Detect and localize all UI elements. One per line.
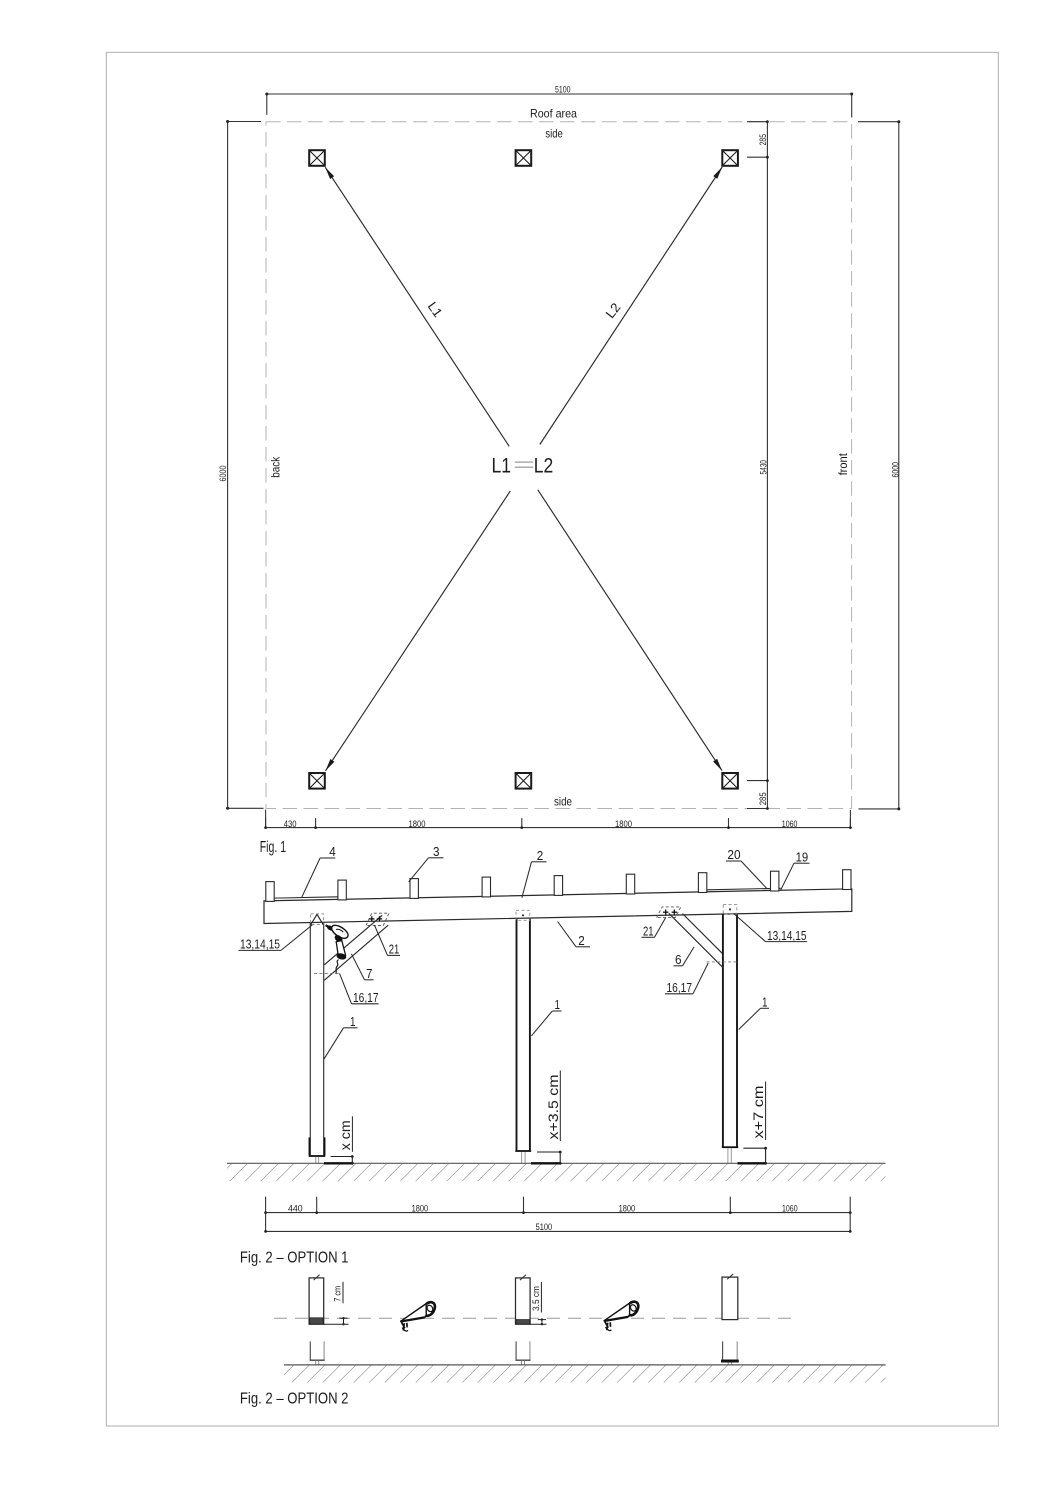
svg-text:6000: 6000 <box>218 466 229 482</box>
svg-text:1060: 1060 <box>782 819 798 830</box>
svg-text:6: 6 <box>675 952 682 967</box>
svg-text:side: side <box>545 127 563 141</box>
svg-text:Fig. 2 – OPTION 2: Fig. 2 – OPTION 2 <box>240 1391 349 1408</box>
svg-text:1: 1 <box>350 1014 356 1029</box>
svg-text:5430: 5430 <box>758 460 769 474</box>
svg-text:1800: 1800 <box>615 819 632 830</box>
svg-text:x+3.5 cm: x+3.5 cm <box>545 1075 561 1140</box>
svg-text:1800: 1800 <box>409 819 426 830</box>
svg-text:285: 285 <box>758 792 769 805</box>
svg-text:1060: 1060 <box>782 1204 798 1215</box>
svg-text:4: 4 <box>329 844 336 859</box>
svg-text:440: 440 <box>288 1204 303 1215</box>
svg-text:L2: L2 <box>534 454 554 477</box>
svg-text:7: 7 <box>366 966 373 981</box>
svg-text:1800: 1800 <box>619 1204 636 1215</box>
svg-text:430: 430 <box>284 819 297 830</box>
svg-text:Fig. 1: Fig. 1 <box>260 839 286 856</box>
svg-text:13,14,15: 13,14,15 <box>767 928 807 943</box>
svg-text:16,17: 16,17 <box>353 990 379 1005</box>
svg-text:3.5 cm: 3.5 cm <box>531 1286 542 1311</box>
svg-text:21: 21 <box>389 942 400 957</box>
svg-text:x+7 cm: x+7 cm <box>750 1086 766 1139</box>
svg-text:21: 21 <box>643 924 654 939</box>
svg-text:back: back <box>269 456 283 478</box>
svg-text:2: 2 <box>578 933 585 948</box>
svg-text:side: side <box>554 795 572 809</box>
svg-text:3: 3 <box>433 844 440 859</box>
svg-text:1800: 1800 <box>412 1204 429 1215</box>
svg-text:1: 1 <box>555 997 561 1012</box>
svg-text:16,17: 16,17 <box>667 980 693 995</box>
svg-text:Fig. 2 – OPTION 1: Fig. 2 – OPTION 1 <box>240 1249 349 1266</box>
svg-text:285: 285 <box>758 134 769 145</box>
svg-text:13,14,15: 13,14,15 <box>240 937 280 952</box>
svg-text:5100: 5100 <box>555 84 571 95</box>
svg-text:L1: L1 <box>492 454 512 477</box>
svg-text:x cm: x cm <box>337 1120 353 1150</box>
svg-text:20: 20 <box>727 847 740 862</box>
svg-text:7 cm: 7 cm <box>333 1286 344 1302</box>
svg-text:2: 2 <box>537 848 544 863</box>
svg-text:front: front <box>836 453 850 476</box>
svg-text:6000: 6000 <box>890 462 901 478</box>
svg-text:Roof area: Roof area <box>530 106 577 120</box>
svg-text:1: 1 <box>762 995 768 1010</box>
svg-text:19: 19 <box>796 850 809 865</box>
svg-text:5100: 5100 <box>536 1222 553 1233</box>
